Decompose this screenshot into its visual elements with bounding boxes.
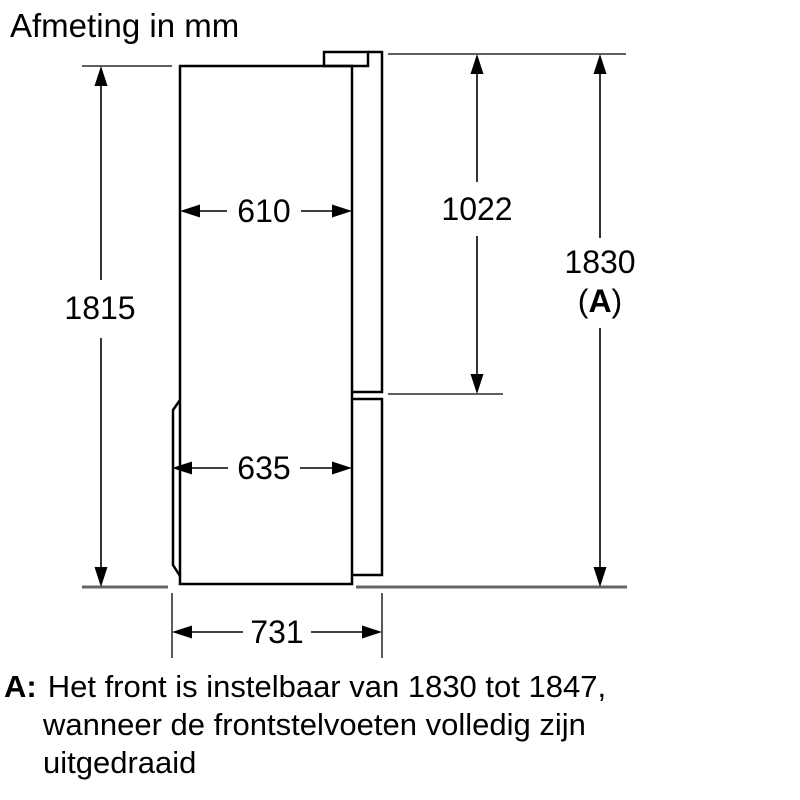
extension-lines: [82, 54, 626, 658]
arrowhead-up-icon: [471, 54, 484, 74]
dim-upper-door-height: 1022: [441, 54, 512, 394]
footnote-marker: A:: [4, 669, 37, 704]
dim-total-height: 1830 (A): [564, 54, 635, 587]
dim-label-upper-door-height: 1022: [441, 191, 512, 227]
dim-label-total-height: 1830: [564, 244, 635, 280]
dim-body-height: 1815: [64, 66, 135, 587]
arrowhead-down-icon: [471, 374, 484, 394]
arrowhead-left-icon: [172, 462, 192, 475]
arrowhead-up-icon: [594, 54, 607, 74]
dim-depth-without-door: 635: [172, 450, 352, 486]
hinge-cover: [324, 52, 368, 66]
arrowhead-down-icon: [95, 567, 108, 587]
arrowhead-up-icon: [95, 66, 108, 86]
footnote-line-1: A:Het front is instelbaar van 1830 tot 1…: [4, 668, 784, 706]
footnote-text-2: wanneer de frontstelvoeten volledig zijn: [43, 706, 784, 744]
arrowhead-left-icon: [172, 626, 192, 639]
dim-label-total-depth: 731: [250, 614, 303, 650]
dim-label-body-height: 1815: [64, 290, 135, 326]
dim-label-depth-without-door: 635: [237, 450, 290, 486]
arrowhead-right-icon: [362, 626, 382, 639]
dim-cabinet-depth: 610: [180, 193, 352, 229]
fridge-outline: [173, 52, 382, 584]
upper-door: [352, 52, 382, 392]
dim-label-total-height-ref: (A): [578, 283, 622, 319]
dim-total-depth: 731: [172, 614, 382, 650]
footnote-text-1: Het front is instelbaar van 1830 tot 184…: [48, 669, 606, 704]
footnote-text-3: uitgedraaid: [43, 744, 784, 782]
dimension-diagram-page: Afmeting in mm: [0, 0, 800, 800]
footnote: A:Het front is instelbaar van 1830 tot 1…: [4, 668, 784, 782]
dim-label-cabinet-depth: 610: [237, 193, 290, 229]
fridge-body: [180, 66, 352, 584]
arrowhead-down-icon: [594, 567, 607, 587]
lower-door: [352, 399, 382, 575]
arrowhead-right-icon: [332, 462, 352, 475]
arrowhead-left-icon: [180, 205, 200, 218]
arrowhead-right-icon: [332, 205, 352, 218]
